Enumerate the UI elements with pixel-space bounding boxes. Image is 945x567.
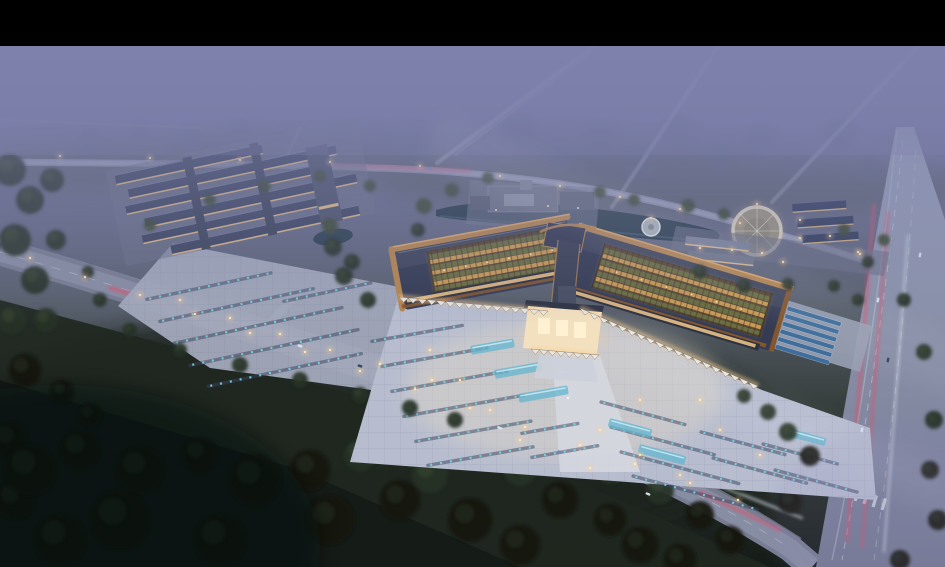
letterbox-top (0, 0, 945, 46)
rendering-frame (0, 0, 945, 567)
aerial-dusk-rendering (0, 0, 945, 567)
